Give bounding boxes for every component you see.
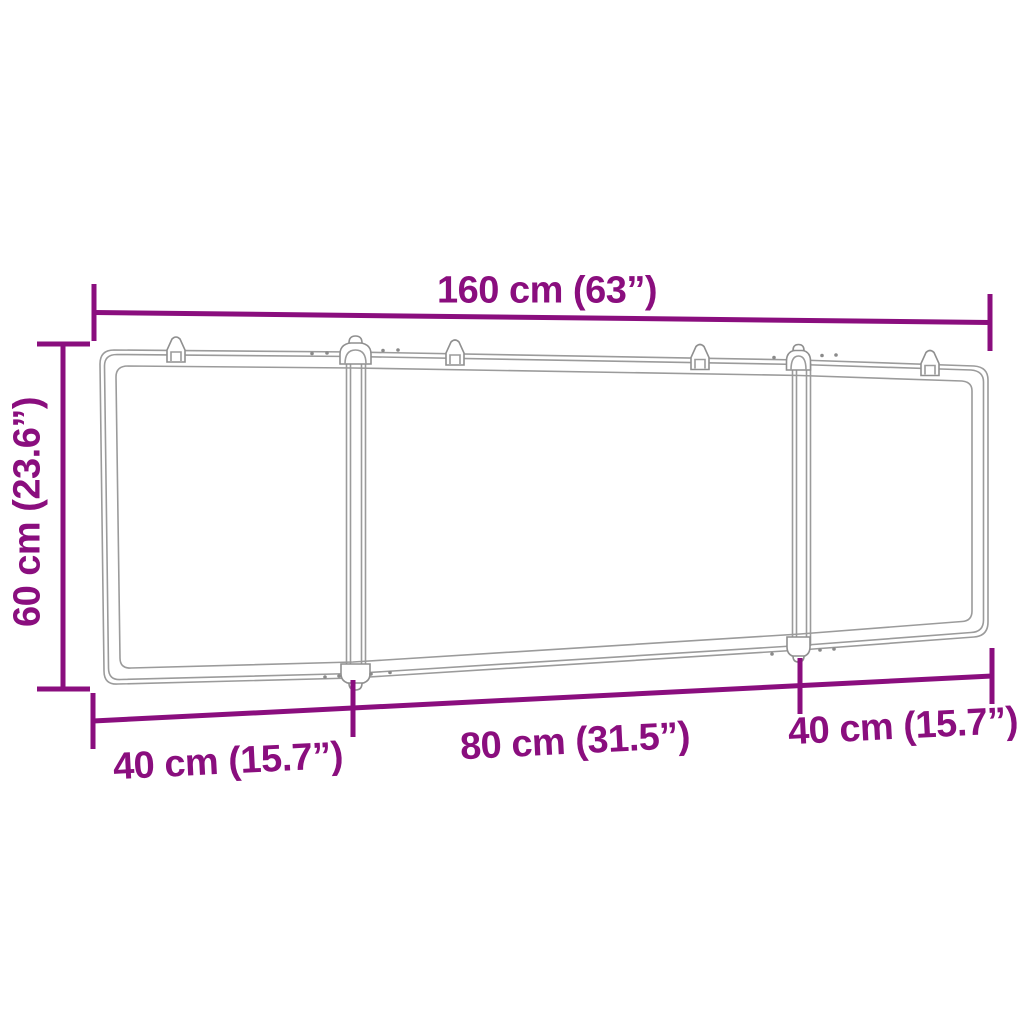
wall-hook-icon [921, 351, 939, 376]
dimension-label-left-height: 60 cm (23.6”) [7, 397, 50, 627]
hinge-cap-bottom [787, 637, 810, 657]
whiteboard-line-art [0, 0, 1024, 1024]
dimension-label-top-width: 160 cm (63”) [437, 270, 657, 313]
wall-hook-icon [691, 345, 709, 370]
wall-hook-icon [167, 337, 185, 362]
frame-inner-edge [116, 366, 972, 668]
frame-outer-edge [100, 350, 988, 684]
fold-hinge-left [310, 336, 400, 690]
wall-hook-icon [446, 340, 464, 365]
whiteboard-outline [100, 350, 988, 684]
product-dimension-diagram: 160 cm (63”) 60 cm (23.6”) 40 cm (15.7”)… [0, 0, 1024, 1024]
fold-hinge-right [770, 345, 838, 663]
hinge-cap-top [787, 350, 811, 370]
